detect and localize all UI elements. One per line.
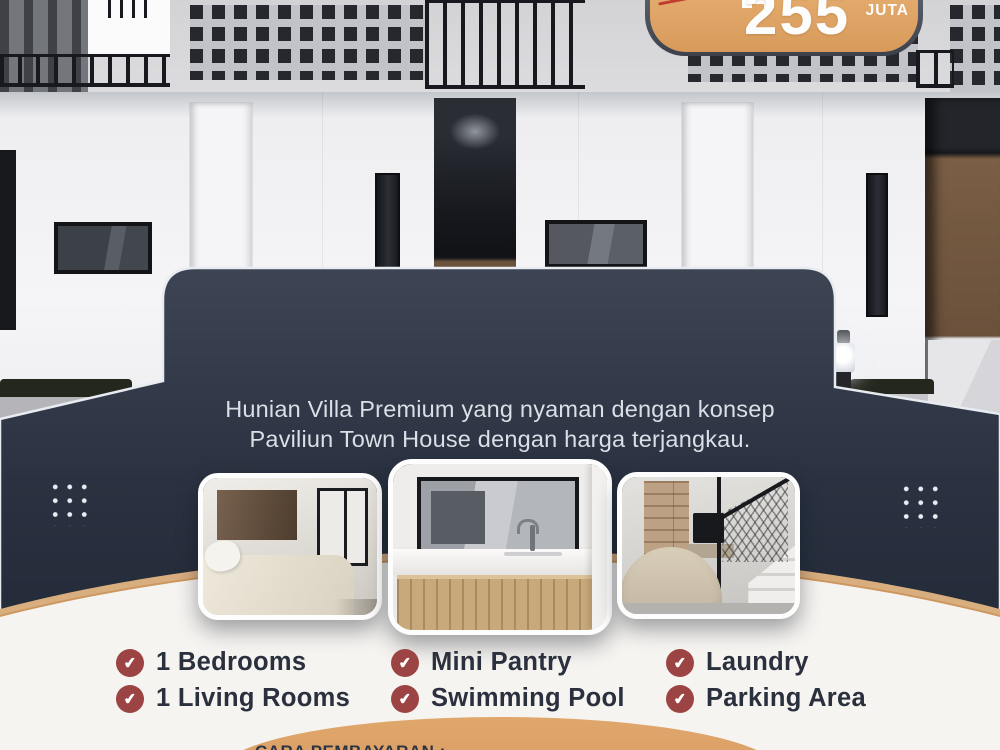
wood-grain [397,579,602,634]
headline-line1: Hunian Villa Premium yang nyaman dengan … [150,394,850,424]
headboard-panel [217,490,297,539]
bedroom-floor [335,599,377,615]
feature-label: Parking Area [706,684,866,713]
living-room-floor [622,603,795,614]
mini-pantry-photo [388,459,612,635]
bedroom-photo [198,473,382,620]
feature-item: ✔ Swimming Pool [391,684,625,713]
faucet-neck [530,525,535,551]
feature-item: ✔ 1 Living Rooms [116,684,350,713]
sink [504,552,562,556]
feature-item: ✔ Laundry [666,648,809,677]
real-estate-flyer: 255 JUTA Hunian Villa Premium yang nyama… [0,0,1000,750]
window-reflection [431,491,485,544]
feature-item: ✔ Mini Pantry [391,648,572,677]
feature-label: Swimming Pool [431,684,625,713]
headline: Hunian Villa Premium yang nyaman dengan … [150,394,850,454]
check-icon: ✔ [665,647,696,678]
faucet [517,519,539,534]
feature-label: Laundry [706,648,809,677]
dot-grid-decoration [46,478,94,526]
check-icon: ✔ [390,647,421,678]
countertop [393,549,607,576]
living-room-photo [617,472,800,619]
feature-label: Mini Pantry [431,648,572,677]
pantry-side-wall [592,464,607,630]
footer-heading: CARA PEMBAYARAN : [255,742,446,750]
headline-line2: Paviliun Town House dengan harga terjang… [150,424,850,454]
check-icon: ✔ [390,683,421,714]
check-icon: ✔ [115,647,146,678]
feature-item: ✔ 1 Bedrooms [116,648,306,677]
feature-label: 1 Bedrooms [156,648,306,677]
pantry-window [417,477,579,558]
check-icon: ✔ [115,683,146,714]
feature-label: 1 Living Rooms [156,684,350,713]
feature-item: ✔ Parking Area [666,684,866,713]
dot-grid-decoration [897,480,945,528]
check-icon: ✔ [665,683,696,714]
window-mullion [344,491,347,564]
wood-cabinet [397,575,602,634]
